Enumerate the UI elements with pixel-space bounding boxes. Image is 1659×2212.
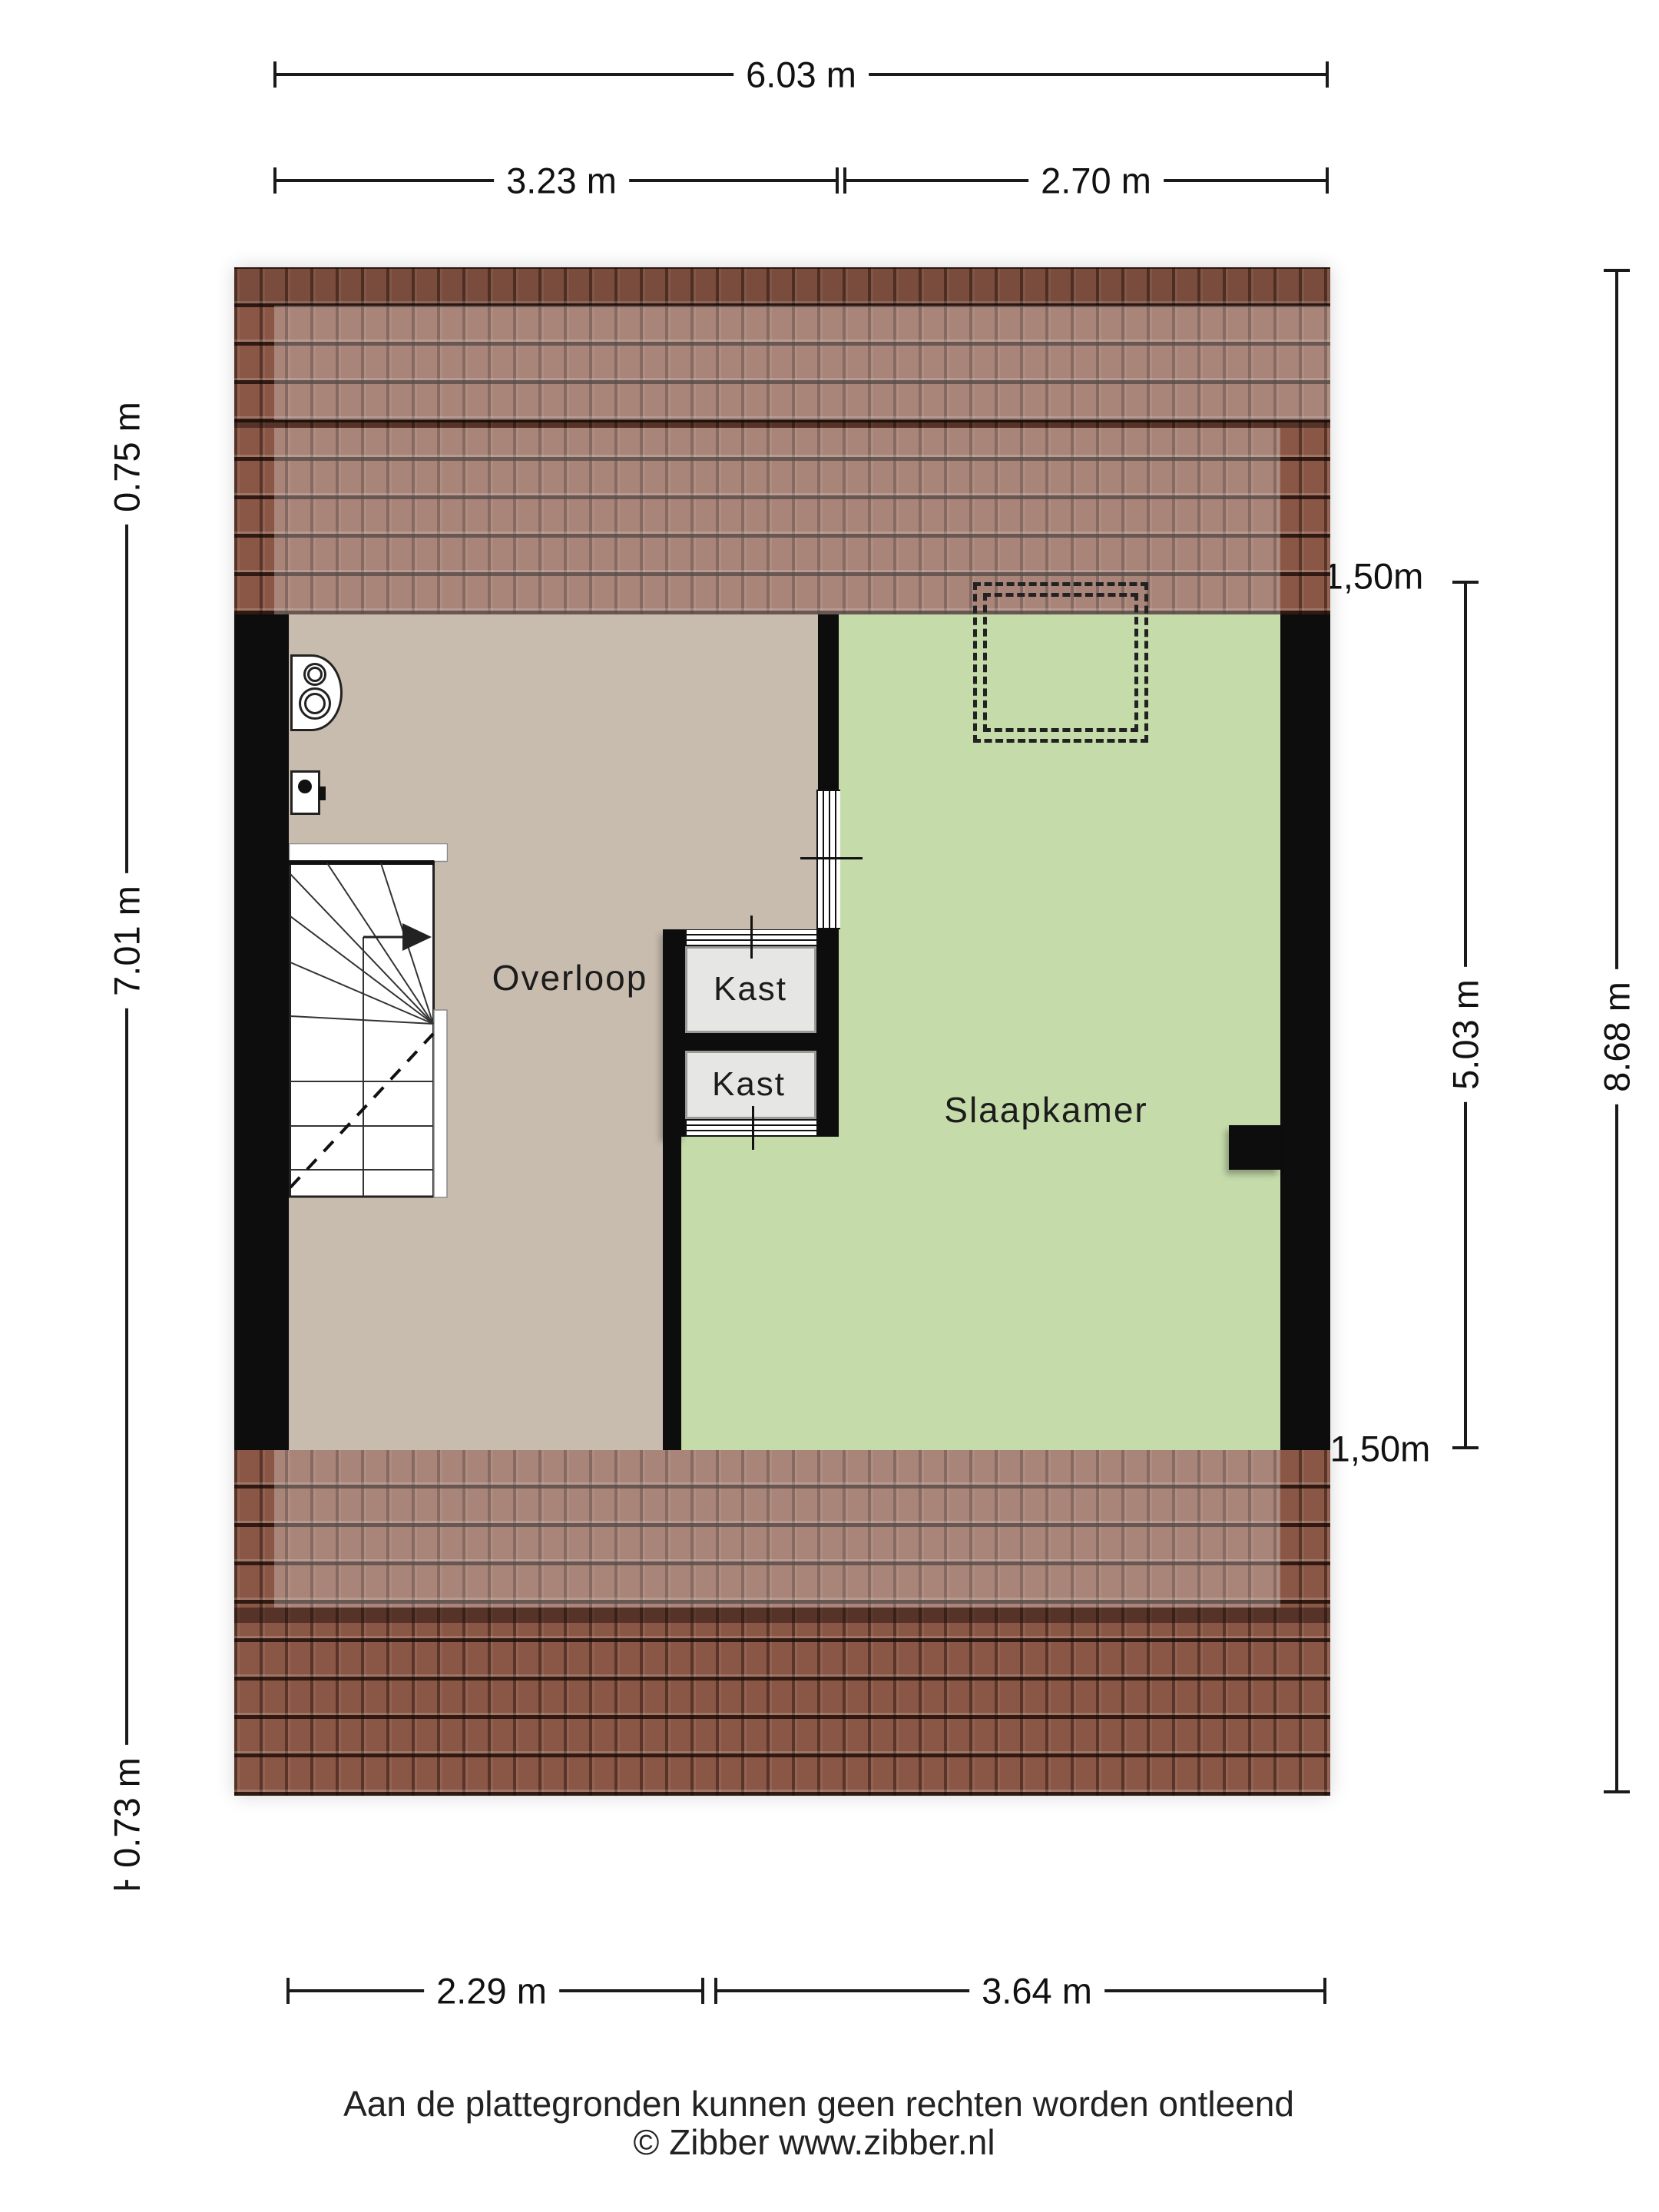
- dim-label-right-total: 8.68 m: [1594, 969, 1640, 1104]
- roof-contour-overlay: [274, 1450, 1280, 1608]
- door-slaapkamer: [816, 790, 840, 929]
- staircase: [289, 843, 448, 1198]
- dim-tick: [273, 167, 276, 194]
- stair-top-landing: [290, 844, 448, 862]
- room-label-kast-lower: Kast: [712, 1065, 786, 1104]
- stair-void-strip: [434, 1010, 447, 1197]
- dim-label-left-middle: 7.01 m: [104, 873, 150, 1008]
- dim-tick: [701, 1978, 704, 2004]
- roof-ridge-line: [234, 420, 1330, 428]
- dim-line-left: [125, 430, 128, 1889]
- wall-kast-right: [816, 929, 839, 1137]
- dormer-dashed-outline-inner: [983, 593, 1138, 732]
- roof-ridge-line: [234, 1608, 1330, 1623]
- dim-tick: [1604, 1790, 1630, 1793]
- dim-tick: [114, 1886, 140, 1889]
- dim-label-left-top: 0.75 m: [104, 389, 150, 525]
- dim-tick: [1452, 581, 1479, 584]
- wall-right: [1280, 614, 1330, 1450]
- wall-left: [234, 614, 289, 1450]
- dim-label-left-bottom: 0.73 m: [104, 1745, 150, 1880]
- dim-label-top-left: 3.23 m: [494, 158, 629, 204]
- floorplan-drawing: Overloop Kast Kast Slaapkamer: [234, 267, 1330, 1796]
- dim-tick: [1326, 167, 1329, 194]
- dim-tick: [836, 167, 839, 194]
- dim-tick: [1604, 269, 1630, 272]
- dim-label-right-inner: 5.03 m: [1443, 967, 1488, 1102]
- contour-label-top: 1,50m: [1323, 555, 1424, 598]
- dim-tick: [1326, 61, 1329, 88]
- dim-label-bottom-left: 2.29 m: [424, 1969, 559, 2014]
- room-label-overloop: Overloop: [492, 957, 648, 998]
- dim-tick: [286, 1978, 290, 2004]
- wall-kast-divider: [685, 1033, 816, 1051]
- wall-kast-left: [663, 929, 685, 1137]
- dim-tick: [1323, 1978, 1326, 2004]
- footer-copyright: © Zibber www.zibber.nl: [633, 2121, 995, 2163]
- dim-tick: [1452, 1446, 1479, 1449]
- door-swing-tick: [800, 857, 863, 859]
- wall-stub-right: [1229, 1125, 1280, 1170]
- stair-body: [290, 862, 434, 1197]
- dim-tick: [714, 1978, 717, 2004]
- kast-door-tick: [750, 916, 753, 959]
- kast-door-tick: [752, 1106, 754, 1150]
- dim-label-bottom-right: 3.64 m: [969, 1969, 1104, 2014]
- footer-disclaimer: Aan de plattegronden kunnen geen rechten…: [343, 2083, 1294, 2124]
- dim-tick: [273, 61, 276, 88]
- dim-label-top-total: 6.03 m: [733, 52, 869, 98]
- floor-slaapkamer-extension: [681, 1137, 1280, 1450]
- contour-label-bottom: 1,50m: [1330, 1428, 1431, 1470]
- wall-below-kast: [663, 1137, 681, 1450]
- roof-contour-overlay: [274, 306, 1330, 420]
- dim-tick: [843, 167, 846, 194]
- room-label-slaapkamer: Slaapkamer: [944, 1089, 1147, 1131]
- dim-label-top-right: 2.70 m: [1028, 158, 1164, 204]
- room-label-kast-upper: Kast: [714, 970, 787, 1008]
- wall-interior-upper: [818, 614, 839, 790]
- wall-switch-icon: [290, 770, 320, 815]
- floorplan-page: 6.03 m 3.23 m 2.70 m 0.75 m 7.01 m 0.73 …: [0, 0, 1659, 2212]
- roof-shading: [234, 267, 1330, 306]
